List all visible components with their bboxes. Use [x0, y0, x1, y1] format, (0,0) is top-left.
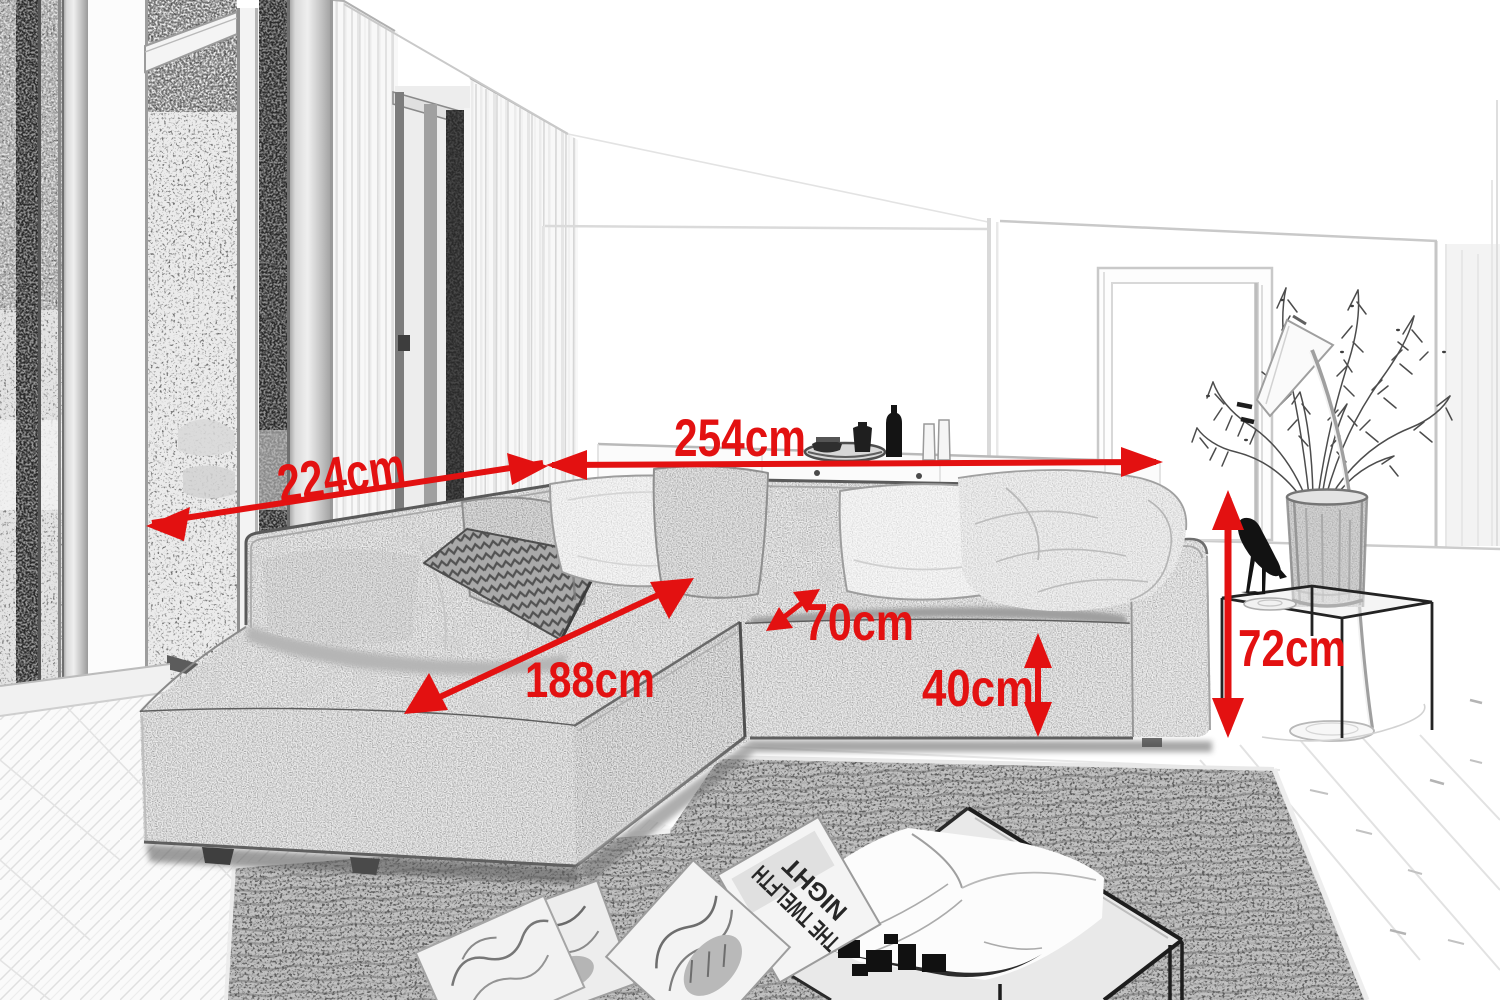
svg-text:254cm: 254cm — [674, 409, 806, 468]
svg-text:72cm: 72cm — [1238, 620, 1346, 678]
svg-text:70cm: 70cm — [804, 594, 914, 652]
svg-text:188cm: 188cm — [525, 652, 655, 708]
svg-text:40cm: 40cm — [922, 660, 1034, 718]
